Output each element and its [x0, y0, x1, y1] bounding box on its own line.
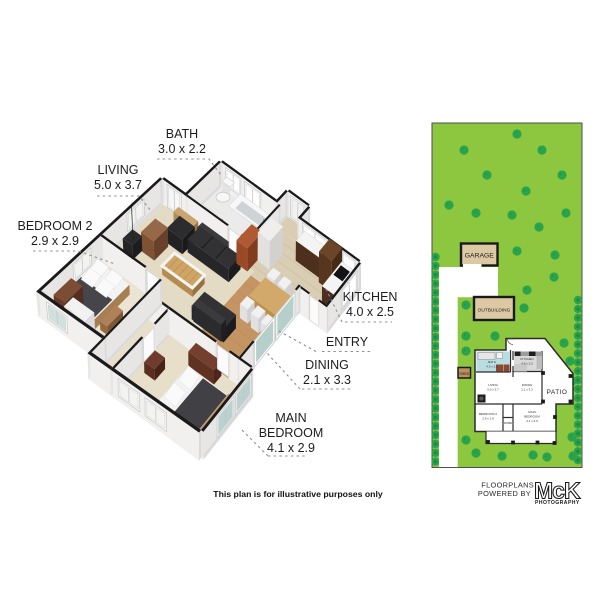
- svg-text:POWERED BY: POWERED BY: [478, 489, 531, 498]
- svg-text:PHOTOGRAPHY: PHOTOGRAPHY: [535, 500, 580, 506]
